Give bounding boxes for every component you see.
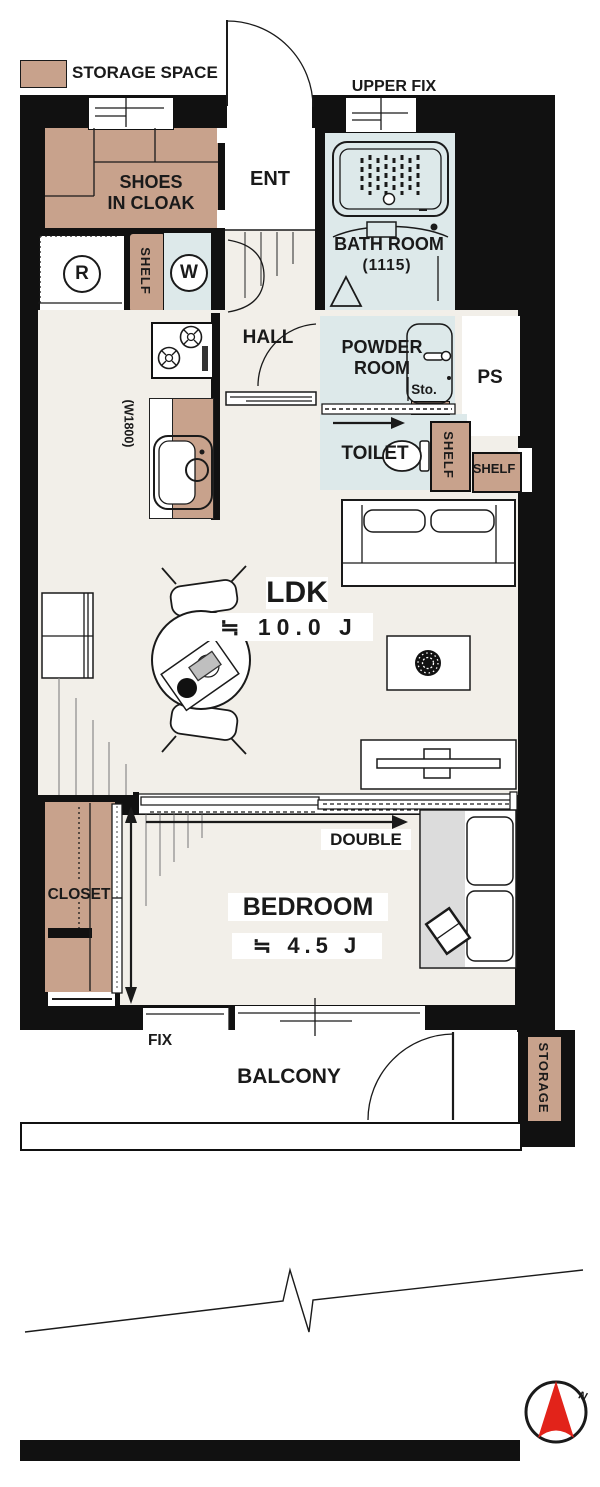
ps-label: PS [470,365,510,390]
fix-label: FIX [135,1032,185,1050]
bath-size-label: (1115) [337,256,437,276]
bathtub [331,142,448,306]
hall-details [225,230,316,405]
window-mullions [95,98,408,130]
sto-label: Sto. [404,381,444,398]
toilet-label: TOILET [335,442,415,466]
laundry-shelf-label: SHELF [137,236,153,306]
fridge-symbol: R [63,255,101,293]
balcony-label: BALCONY [214,1064,364,1090]
double-label: DOUBLE [321,829,411,850]
bedroom-area-label: ≒ 4.5 J [232,933,382,959]
kitchen-sink [154,436,212,509]
double-bed [420,810,516,968]
ldk-label: LDK [266,577,328,609]
upper-fix-label: UPPER FIX [334,77,454,97]
wall-shelf-label: SHELF [470,458,518,480]
bedroom-label: BEDROOM [228,893,388,921]
hall-label: HALL [233,326,303,350]
bath-label: BATH ROOM [329,233,449,255]
closet-span-arrow [125,806,137,1004]
side-cabinet [42,593,93,678]
plan-linework: N [0,0,600,1487]
powder-room-label: POWDERROOM [322,336,442,380]
shoes-cloak-label: SHOESIN CLOAK [95,170,207,216]
stove-burners [159,327,209,372]
washer-symbol: W [170,254,208,292]
kitchen-width-label: (W1800) [121,384,136,464]
ldk-area-label: ≒ 10.0 J [205,613,373,641]
toilet-shelf-label: SHELF [440,420,456,490]
floor-plan: STORAGE SPACE [0,0,600,1487]
compass-icon: N [526,1381,589,1442]
ent-label: ENT [235,166,305,192]
balcony-door-arc [368,1032,453,1120]
bedroom-window-mullions [146,998,420,1036]
bed-size-arrow [146,815,408,829]
coffee-table [387,636,470,690]
entrance-door-arc [227,20,313,107]
balcony-storage-label: STORAGE [535,1038,551,1118]
dining-set [152,566,250,754]
tv-board [361,740,516,789]
closet-label: CLOSET [39,886,119,904]
break-line [25,1270,583,1332]
sofa [342,500,515,586]
